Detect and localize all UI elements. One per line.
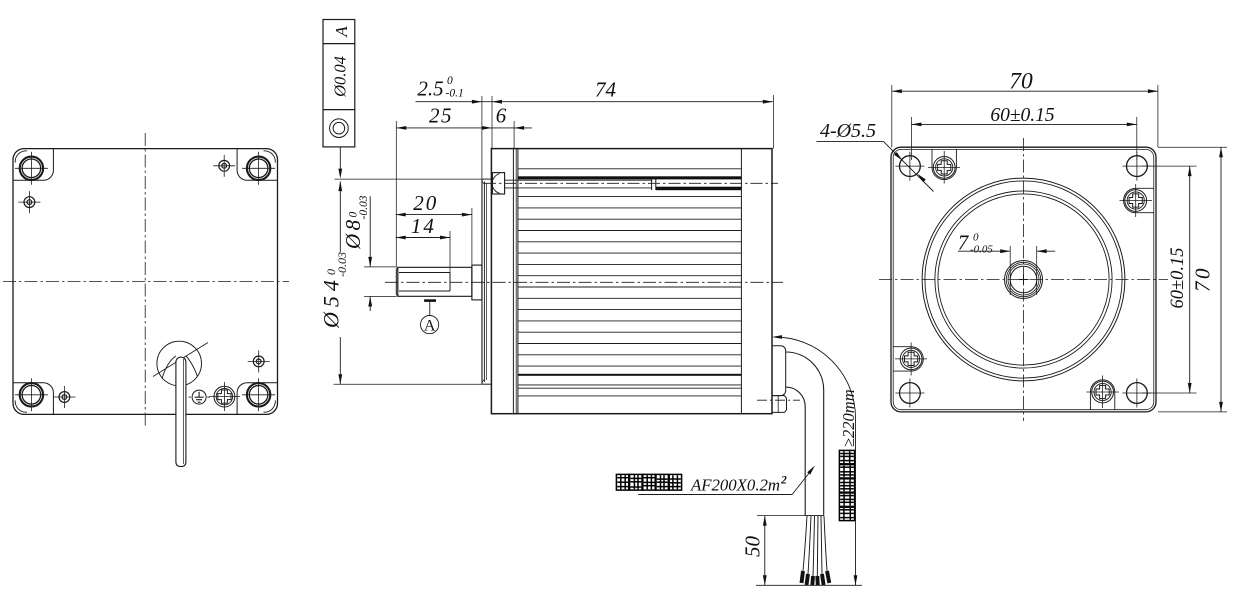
svg-text:60±0.15: 60±0.15 [1168,247,1188,308]
svg-text:-0.1: -0.1 [446,88,464,100]
svg-text:4-Ø5.5: 4-Ø5.5 [820,120,876,142]
svg-text:A: A [332,26,351,38]
svg-text:-0.03: -0.03 [335,252,349,277]
svg-text:-0.03: -0.03 [358,195,370,219]
svg-text:0: 0 [447,75,453,87]
svg-text:AF200X0.2m: AF200X0.2m [690,476,780,495]
svg-text:14: 14 [411,214,436,238]
svg-text:Ø8: Ø8 [341,216,365,250]
svg-text:≥220mm: ≥220mm [839,389,858,447]
svg-text:70: 70 [1009,69,1033,95]
svg-text:20: 20 [413,191,438,215]
svg-text:70: 70 [1191,266,1215,292]
svg-text:2: 2 [780,475,787,487]
svg-text:60±0.15: 60±0.15 [990,105,1055,126]
svg-text:6: 6 [496,104,507,128]
svg-text:Ø54: Ø54 [319,275,344,329]
svg-text:50: 50 [741,536,765,558]
svg-text:0: 0 [973,232,979,244]
svg-text:2.5: 2.5 [417,77,443,101]
svg-text:Ø0.04: Ø0.04 [331,56,350,98]
svg-text:25: 25 [429,104,453,128]
svg-text:A: A [424,318,436,335]
svg-text:-0.05: -0.05 [970,244,993,256]
svg-text:74: 74 [595,78,617,102]
